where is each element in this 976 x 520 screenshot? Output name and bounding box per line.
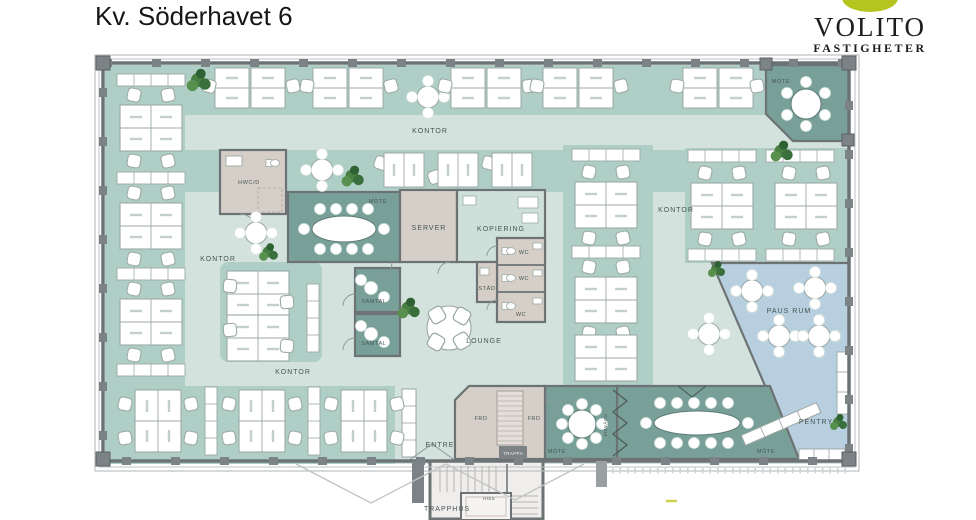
label-kontor-left: KONTOR [200, 256, 236, 263]
label-samtal-1: SAMTAL [361, 299, 386, 305]
exterior-marks [296, 464, 848, 503]
label-frd-1: FRD [474, 416, 487, 422]
label-wc-3: WC [516, 312, 526, 318]
label-trappa: TRAPPA [503, 451, 523, 456]
label-kontor-top: KONTOR [412, 128, 448, 135]
left-desk-column [117, 87, 185, 376]
label-wc-1: WC [519, 250, 529, 256]
label-hiss: HISS [483, 496, 495, 501]
label-lounge: LOUNGE [466, 338, 502, 345]
label-entre: ENTRE [426, 442, 455, 449]
label-server: SERVER [412, 225, 447, 232]
label-pentry: PENTRY [799, 419, 833, 426]
floor-plan: KONTOR KONTOR KONTOR KONTOR MÖTE MÖTE MÖ… [0, 0, 976, 520]
label-frd-2: FRD [527, 416, 540, 422]
label-mote-big: MÖTE [757, 448, 775, 455]
label-kontor-bottom: KONTOR [275, 369, 311, 376]
label-kontor-right: KONTOR [658, 207, 694, 214]
label-wc-2: WC [519, 276, 529, 282]
bottom-desk-row [117, 387, 404, 455]
entre-glass-door [402, 389, 416, 457]
label-mote-mid: MÖTE [548, 448, 566, 455]
label-vikvagg: VIKVÄGG [602, 413, 608, 436]
lounge-furniture [426, 305, 472, 352]
label-mote-center: MÖTE [369, 198, 387, 205]
label-samtal-2: SAMTAL [361, 341, 386, 347]
frd-inner-stair [497, 391, 523, 445]
label-mote-topright: MÖTE [772, 78, 790, 85]
label-stad: STÄD [478, 285, 495, 292]
label-paus-rum: PAUS RUM [767, 308, 811, 315]
label-hwcd: HWC/D [238, 180, 260, 186]
slide: Kv. Söderhavet 6 VOLITO FASTIGHETER [0, 0, 976, 520]
label-trapphus: TRAPPHUS [424, 506, 470, 513]
label-kopiering: KOPIERING [477, 226, 525, 233]
